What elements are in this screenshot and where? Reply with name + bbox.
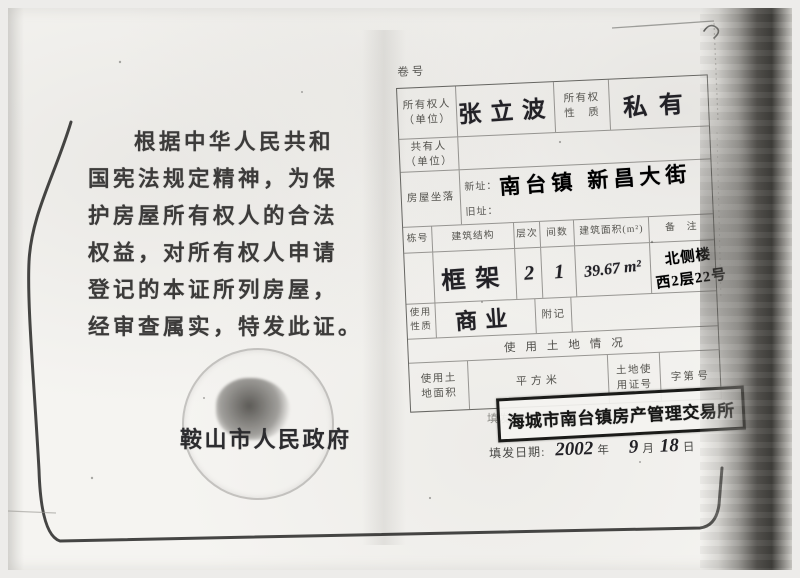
issue-year-handwriting: 2002 xyxy=(555,438,594,461)
floors-value-cell: 2 xyxy=(514,248,542,299)
property-form-area: 卷号 所有权人 （单位） 张立波 所有权 性 质 私有 共有人 （单位） 房屋坐… xyxy=(396,74,722,412)
declaration-line: 护房屋所有权人的合法 xyxy=(88,198,384,235)
area-handwriting: 39.67 m² xyxy=(584,258,643,282)
issuer-name: 鞍山市人民政府 xyxy=(180,422,340,454)
owner-label-cell: 所有权人 （单位） xyxy=(397,86,457,138)
location-value-cell: 新址： 南台镇 新昌大街 旧址： xyxy=(459,159,713,224)
usage-handwriting: 商业 xyxy=(455,300,517,336)
old-address-label: 旧址： xyxy=(465,201,499,217)
rooms-value-cell: 1 xyxy=(540,246,576,297)
government-seal: 鞍山市人民政府 xyxy=(182,348,334,500)
building-no-header: 栋号 xyxy=(403,227,432,253)
year-unit: 年 xyxy=(597,442,609,458)
declaration-line: 权益，对所有权人申请 xyxy=(88,235,384,272)
remarks-value-cell: 北侧楼 西2层22号 xyxy=(649,240,727,293)
structure-header: 建筑结构 xyxy=(431,223,514,252)
declaration-line: 国宪法规定精神，为保 xyxy=(88,161,384,198)
usage-label-cell: 使用 性质 xyxy=(406,304,435,339)
rooms-handwriting: 1 xyxy=(553,260,565,284)
owner-value-cell: 张立波 xyxy=(455,82,555,136)
issue-month-handwriting: 9 xyxy=(628,436,638,458)
annotation-value-cell xyxy=(570,291,717,331)
certificate-declaration: 根据中华人民共和 国宪法规定精神，为保 护房屋所有权人的合法 权益，对所有权人申… xyxy=(88,124,384,346)
month-unit: 月 xyxy=(642,440,654,456)
floors-handwriting: 2 xyxy=(523,262,535,286)
ownership-nature-label-cell: 所有权 性 质 xyxy=(553,80,610,132)
declaration-line: 登记的本证所列房屋， xyxy=(88,272,384,309)
location-label-cell: 房屋坐落 xyxy=(401,170,461,226)
declaration-line: 经审查属实，特发此证。 xyxy=(88,309,384,346)
structure-handwriting: 框架 xyxy=(440,256,510,296)
usage-value-cell: 商业 xyxy=(434,299,535,337)
volume-number-label: 卷号 xyxy=(397,63,427,80)
scanned-certificate-page: { "left_page": { "paragraph": [ "根据中华人民共… xyxy=(0,0,800,578)
cert-prefix: 字第 xyxy=(671,368,697,384)
co-owner-label-cell: 共有人 （单位） xyxy=(399,137,458,171)
remarks-header: 备 注 xyxy=(648,214,714,242)
land-area-label-cell: 使用土 地面积 xyxy=(409,361,469,411)
new-address-label: 新址： xyxy=(464,176,498,192)
annotation-label-cell: 附记 xyxy=(534,298,571,334)
scan-left-edge-shadow xyxy=(8,8,24,570)
rooms-header: 间数 xyxy=(539,220,574,246)
structure-value-cell: 框架 xyxy=(432,249,516,303)
declaration-line: 根据中华人民共和 xyxy=(88,124,384,161)
day-unit: 日 xyxy=(683,439,695,455)
issue-date-label: 填发日期: xyxy=(489,443,546,462)
cert-suffix: 号 xyxy=(697,367,710,383)
building-no-value-cell xyxy=(404,253,434,304)
ownership-nature-value-cell: 私有 xyxy=(608,75,709,129)
issue-day-handwriting: 18 xyxy=(659,435,679,458)
owner-name-handwriting: 张立波 xyxy=(456,89,554,130)
property-form-table: 所有权人 （单位） 张立波 所有权 性 质 私有 共有人 （单位） 房屋坐落 新… xyxy=(396,74,722,412)
area-value-cell: 39.67 m² xyxy=(574,243,651,296)
area-header: 建筑面积(m²) xyxy=(573,217,649,245)
floors-header: 层次 xyxy=(513,222,540,248)
ownership-nature-handwriting: 私有 xyxy=(622,83,696,123)
